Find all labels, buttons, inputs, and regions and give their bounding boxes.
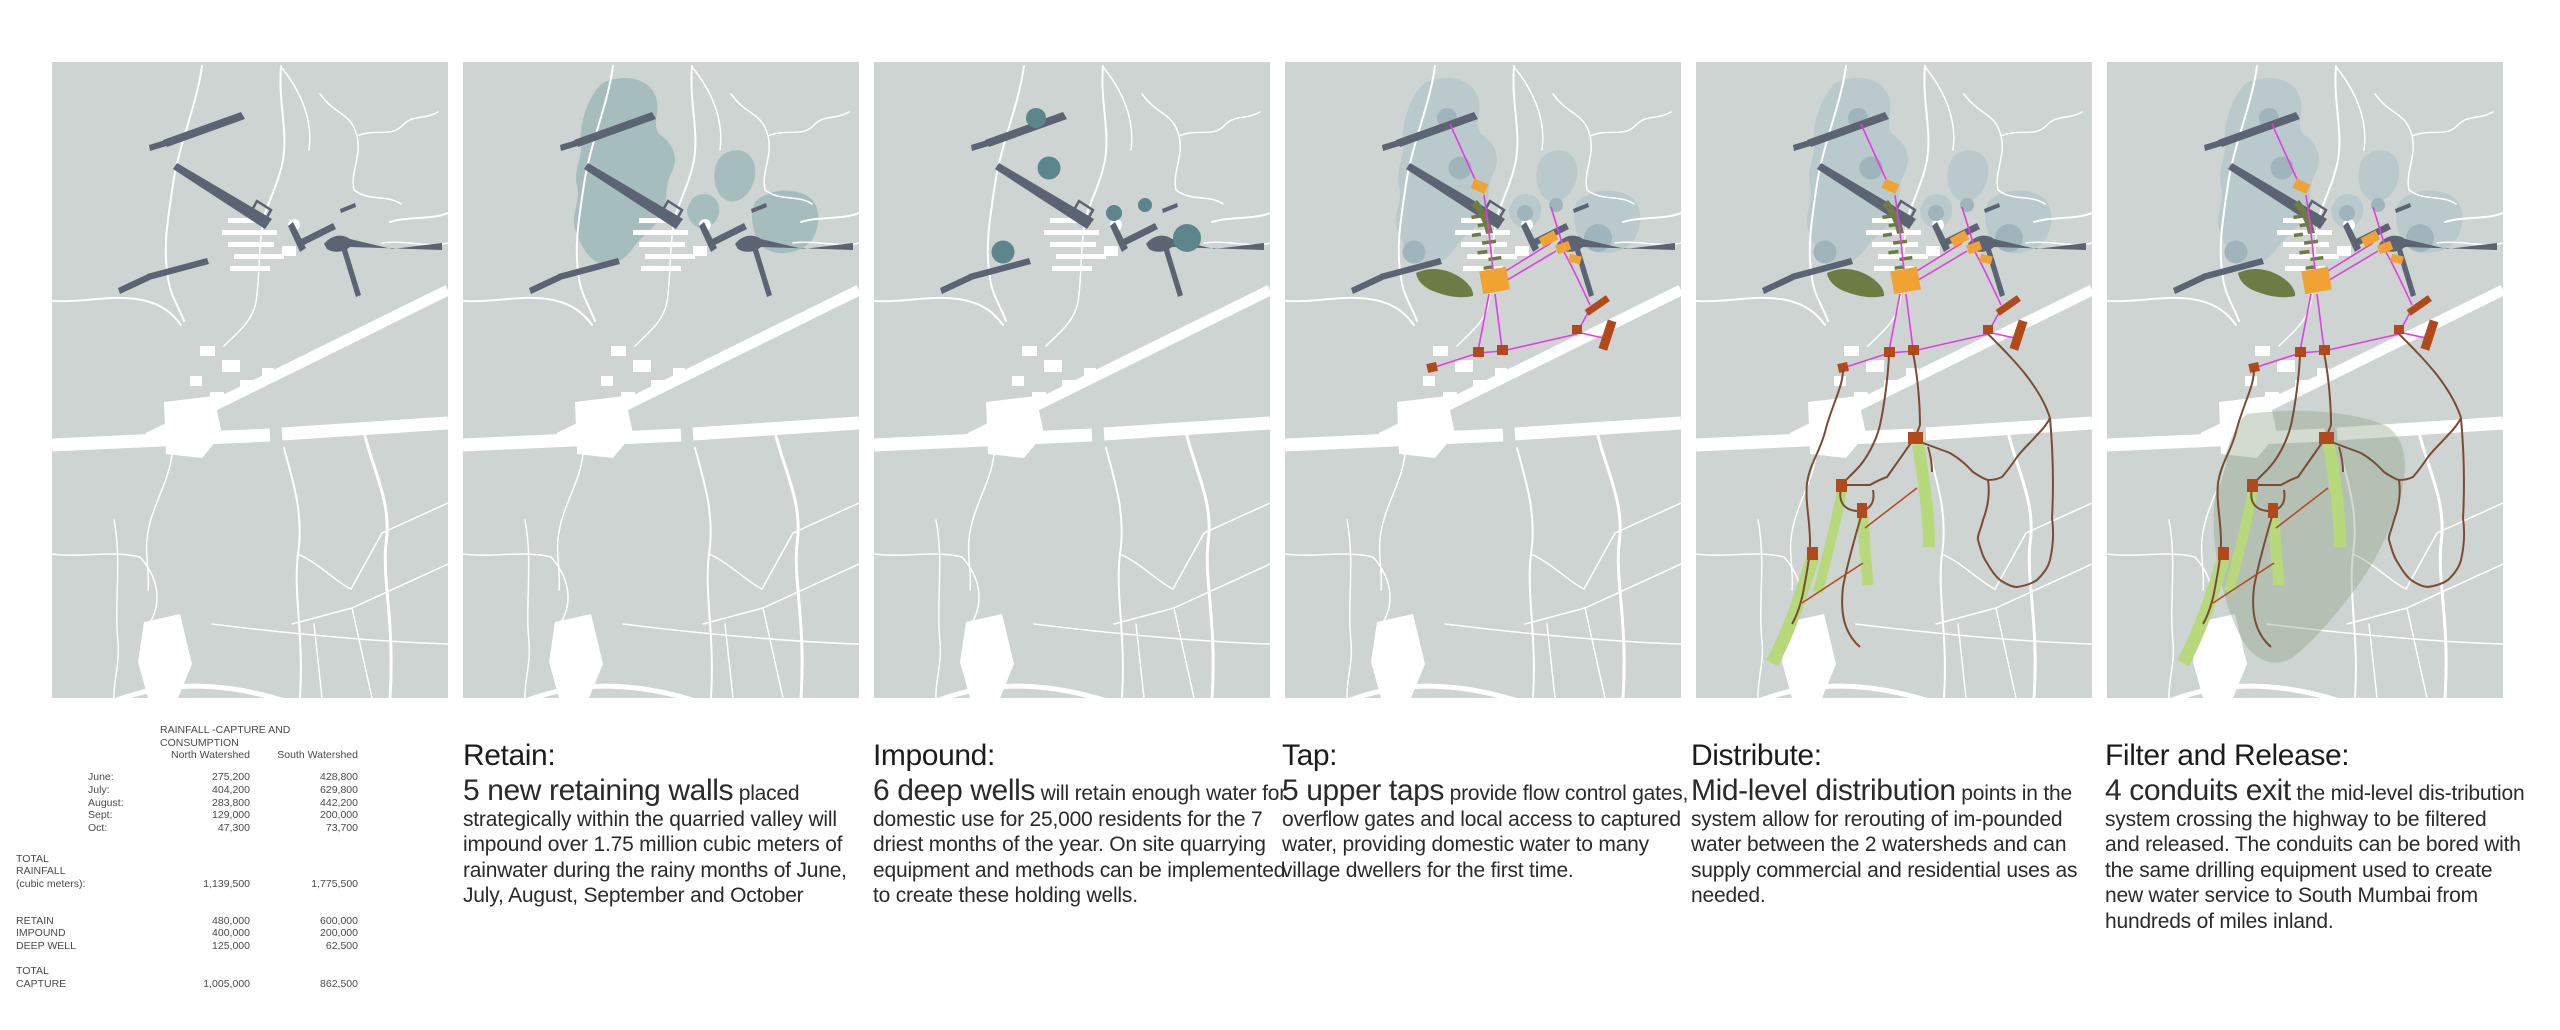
total-capture-row: TOTAL CAPTURE 1,005,000 862,500: [88, 965, 360, 990]
column-header-north: North Watershed: [160, 749, 250, 762]
caption-lead: Mid-level distribution: [1691, 774, 1956, 807]
presentation-board: RAINFALL -CAPTURE AND CONSUMPTION North …: [0, 0, 2560, 1030]
caption-body: 5 new retaining walls placed strategical…: [463, 778, 883, 909]
table-row: Oct: 47,300 73,700: [88, 822, 360, 835]
caption-body: 4 conduits exit the mid-level dis-tribut…: [2105, 778, 2525, 934]
table-row: IMPOUND 400,000 200,000: [88, 927, 360, 940]
table-row: RETAIN 480,000 600,000: [88, 915, 360, 928]
rainfall-table: RAINFALL -CAPTURE AND CONSUMPTION North …: [88, 724, 360, 990]
map-distribute: [1696, 62, 2092, 698]
caption-impound: Impound: 6 deep wells will retain enough…: [873, 739, 1293, 909]
caption-tap: Tap: 5 upper taps provide flow control g…: [1282, 739, 1702, 883]
caption-retain: Retain: 5 new retaining walls placed str…: [463, 739, 883, 909]
caption-title: Impound:: [873, 739, 1293, 773]
column-header-south: South Watershed: [250, 749, 358, 762]
map-filter-release: [2107, 62, 2503, 698]
map-impound-areas: [463, 62, 859, 698]
table-row: July: 404,200 629,800: [88, 784, 360, 797]
caption-title: Distribute:: [1691, 739, 2111, 773]
caption-distribute: Distribute: Mid-level distribution point…: [1691, 739, 2111, 909]
table-row: Sept: 129,000 200,000: [88, 809, 360, 822]
caption-body: 5 upper taps provide flow control gates,…: [1282, 778, 1702, 883]
map-deep-wells: [874, 62, 1270, 698]
caption-body: Mid-level distribution points in the sys…: [1691, 778, 2111, 909]
total-rainfall-row: TOTAL RAINFALL (cubic meters): 1,139,500…: [88, 853, 360, 891]
caption-title: Tap:: [1282, 739, 1702, 773]
table-row: DEEP WELL 125,000 62,500: [88, 940, 360, 953]
caption-lead: 5 upper taps: [1282, 774, 1444, 807]
caption-lead: 6 deep wells: [873, 774, 1035, 807]
caption-lead: 4 conduits exit: [2105, 774, 2291, 807]
table-row: August: 283,800 442,200: [88, 797, 360, 810]
caption-title: Retain:: [463, 739, 883, 773]
caption-lead: 5 new retaining walls: [463, 774, 733, 807]
caption-body: 6 deep wells will retain enough water fo…: [873, 778, 1293, 909]
rainfall-table-title: RAINFALL -CAPTURE AND CONSUMPTION: [160, 724, 360, 749]
map-retain: [52, 62, 448, 698]
map-tap: [1285, 62, 1681, 698]
caption-filter-release: Filter and Release: 4 conduits exit the …: [2105, 739, 2525, 934]
table-row: June: 275,200 428,800: [88, 771, 360, 784]
caption-title: Filter and Release:: [2105, 739, 2525, 773]
